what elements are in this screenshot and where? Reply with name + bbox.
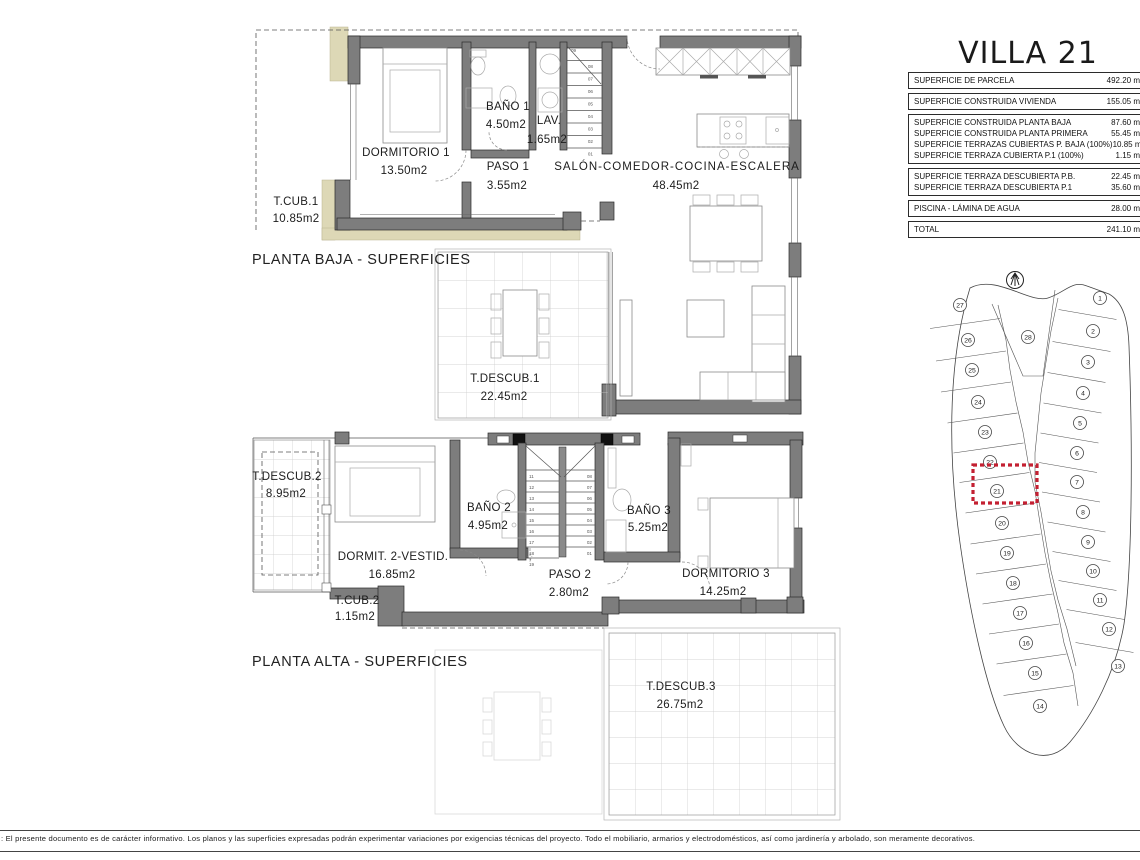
room-area: 4.95m2	[468, 520, 508, 532]
summary-value: 155.05 m	[1107, 96, 1140, 107]
plot-separator	[1048, 373, 1106, 383]
staircase: 09 0807060504030201	[567, 46, 602, 157]
stair-step-number: 16	[529, 529, 535, 534]
room-area: 1.65m2	[527, 134, 567, 146]
room-label: BAÑO 2	[467, 501, 511, 514]
room-area: 4.50m2	[486, 119, 526, 131]
disclaimer-text: : El presente documento es de carácter i…	[1, 834, 1139, 843]
room-area: 22.45m2	[481, 391, 528, 403]
summary-label: TOTAL	[914, 224, 939, 235]
plot-separator	[941, 382, 1011, 392]
plot-number: 20	[998, 520, 1006, 527]
tv-unit	[620, 300, 632, 396]
plot-separator	[983, 594, 1053, 604]
plot-separator	[1041, 433, 1099, 443]
terrace-descub-2	[254, 440, 330, 590]
summary-row: SUPERFICIE TERRAZA DESCUBIERTA P.135.60 …	[909, 182, 1140, 193]
plot-number: 9	[1086, 539, 1090, 546]
plot-number: 1	[1098, 295, 1102, 302]
summary-label: SUPERFICIE CONSTRUIDA VIVIENDA	[914, 96, 1056, 107]
summary-value: 241.10 m	[1107, 224, 1140, 235]
summary-section: SUPERFICIE CONSTRUIDA PLANTA BAJA87.60 m…	[908, 114, 1140, 164]
laundry-fixtures	[538, 54, 562, 112]
plot-separator	[989, 624, 1059, 634]
plot-separator	[1039, 463, 1097, 473]
plot-separator	[1053, 342, 1111, 352]
stair-step-number: 01	[588, 152, 594, 157]
coffee-table	[687, 300, 724, 337]
room-label: LAV.	[537, 115, 561, 127]
plot-spine	[1035, 298, 1076, 666]
summary-section: SUPERFICIE TERRAZA DESCUBIERTA P.B.22.45…	[908, 168, 1140, 196]
summary-label: SUPERFICIE CONSTRUIDA PLANTA BAJA	[914, 117, 1071, 128]
plot-separator	[976, 564, 1046, 574]
stair-step-number: 12	[529, 485, 535, 490]
room-area: 13.50m2	[381, 165, 428, 177]
stair-step-number: 13	[529, 496, 535, 501]
stair-step-number: 04	[587, 518, 593, 523]
plot-number: 23	[981, 429, 989, 436]
plan-sheet: { "title": "VILLA 21", "summary_table": …	[0, 0, 1140, 860]
stair-step-number: 17	[529, 540, 535, 545]
stair-step-number: 01	[587, 551, 593, 556]
planta-baja-plan: 09 0807060504030201	[248, 24, 812, 426]
plot-number: 17	[1016, 610, 1024, 617]
kitchen-island	[697, 114, 789, 159]
plot-separator	[1067, 610, 1125, 620]
plot-separator	[1059, 310, 1117, 320]
stair-step-number: 07	[588, 77, 594, 82]
summary-section: TOTAL241.10 m	[908, 221, 1140, 238]
summary-row: TOTAL241.10 m	[909, 224, 1140, 235]
planta-alta-caption: PLANTA ALTA - SUPERFICIES	[248, 648, 508, 674]
room-label: DORMITORIO 3	[682, 568, 770, 580]
room-label: DORMITORIO 1	[362, 147, 450, 159]
plot-number: 8	[1081, 509, 1085, 516]
stair-step-number: 08	[588, 64, 594, 69]
plot-number: 5	[1078, 420, 1082, 427]
plot-number: 11	[1096, 597, 1103, 604]
plot-number: 3	[1086, 359, 1090, 366]
plot-number: 6	[1075, 450, 1079, 457]
plot-separator	[1042, 492, 1100, 502]
room-area: 1.15m2	[335, 611, 375, 623]
room-area: 16.85m2	[369, 569, 416, 581]
room-label: DORMIT. 2-VESTID.	[338, 551, 449, 563]
plot-number: 14	[1036, 703, 1044, 710]
stair-step-number: 05	[588, 102, 594, 107]
plot-separator	[954, 443, 1024, 453]
summary-value: 1.15 m	[1116, 150, 1140, 161]
floor-caption-text: PLANTA ALTA - SUPERFICIES	[252, 654, 468, 670]
summary-label: SUPERFICIE TERRAZA DESCUBIERTA P.B.	[914, 171, 1075, 182]
stair-step-number: 15	[529, 518, 535, 523]
stair-step-number: 07	[587, 485, 593, 490]
north-compass-icon	[1007, 272, 1024, 289]
summary-label: PISCINA - LÁMINA DE AGUA	[914, 203, 1020, 214]
plot-separator	[1044, 403, 1102, 413]
plot-spine	[998, 305, 1078, 706]
plot-separator	[930, 319, 1000, 329]
plot-number: 19	[1003, 550, 1011, 557]
room-label: T.CUB.1	[274, 196, 319, 208]
summary-row: SUPERFICIE CONSTRUIDA PLANTA BAJA87.60 m	[909, 117, 1140, 128]
summary-row: SUPERFICIE DE PARCELA492.20 m	[909, 75, 1140, 86]
plot-number: 12	[1105, 626, 1113, 633]
lower-floor-ghost	[435, 650, 602, 814]
plot-number: 2	[1091, 328, 1095, 335]
summary-value: 492.20 m	[1107, 75, 1140, 86]
planta-alta-plan: 1112131415161718190807060504030201 T.DES…	[240, 428, 850, 828]
summary-label: SUPERFICIE DE PARCELA	[914, 75, 1014, 86]
summary-label: SUPERFICIE CONSTRUIDA PLANTA PRIMERA	[914, 128, 1088, 139]
bed-dormitorio-2	[335, 446, 435, 522]
summary-row: SUPERFICIE TERRAZAS CUBIERTAS P. BAJA (1…	[909, 139, 1140, 150]
stair-step-number: 14	[529, 507, 535, 512]
plot-number: 24	[974, 399, 982, 406]
summary-row: SUPERFICIE CONSTRUIDA PLANTA PRIMERA55.4…	[909, 128, 1140, 139]
summary-section: SUPERFICIE DE PARCELA492.20 m	[908, 72, 1140, 89]
summary-value: 28.00 m	[1111, 203, 1140, 214]
stair-step-number: 19	[529, 562, 535, 567]
plot-number: 21	[993, 488, 1001, 495]
room-area: 5.25m2	[628, 522, 668, 534]
plot-separator	[971, 534, 1041, 544]
summary-value: 22.45 m	[1111, 171, 1140, 182]
staircase: 1112131415161718190807060504030201	[526, 446, 595, 567]
room-area: 10.85m2	[273, 213, 320, 225]
room-area: 2.80m2	[549, 587, 589, 599]
stair-step-number: 08	[587, 474, 593, 479]
stair-step-number: 06	[587, 496, 593, 501]
floor-caption-text: PLANTA BAJA - SUPERFICIES	[252, 252, 471, 268]
room-area: 48.45m2	[653, 180, 700, 192]
room-label: BAÑO 3	[627, 504, 671, 517]
summary-row: PISCINA - LÁMINA DE AGUA28.00 m	[909, 203, 1140, 214]
plot-number: 27	[956, 302, 964, 309]
summary-label: SUPERFICIE TERRAZAS CUBIERTAS P. BAJA (1…	[914, 139, 1113, 150]
room-label: SALÓN-COMEDOR-COCINA-ESCALERA	[554, 160, 800, 173]
room-label: PASO 1	[487, 161, 530, 173]
stair-step-number: 09	[571, 48, 577, 53]
footer-rule-bottom	[0, 851, 1140, 852]
summary-row: SUPERFICIE TERRAZA CUBIERTA P.1 (100%)1.…	[909, 150, 1140, 161]
planta-baja-caption: PLANTA BAJA - SUPERFICIES	[248, 246, 508, 272]
summary-section: PISCINA - LÁMINA DE AGUA28.00 m	[908, 200, 1140, 217]
stair-step-number: 05	[587, 507, 593, 512]
dining-table	[690, 195, 762, 272]
summary-value: 10.85 m	[1113, 139, 1140, 150]
summary-row: SUPERFICIE TERRAZA DESCUBIERTA P.B.22.45…	[909, 171, 1140, 182]
plot-separator	[1053, 552, 1111, 562]
room-label: PASO 2	[549, 569, 592, 581]
room-label: T.DESCUB.2	[252, 471, 321, 483]
plot-separator	[948, 413, 1018, 423]
room-area: 14.25m2	[700, 586, 747, 598]
summary-label: SUPERFICIE TERRAZA DESCUBIERTA P.1	[914, 182, 1072, 193]
room-label: T.CUB.2	[335, 595, 380, 607]
summary-value: 87.60 m	[1111, 117, 1140, 128]
plot-separator	[1004, 686, 1074, 696]
plot-number: 16	[1022, 640, 1030, 647]
plot-number: 26	[964, 337, 972, 344]
plot-number: 4	[1081, 390, 1085, 397]
plot-number: 15	[1031, 670, 1039, 677]
bed-dormitorio-1	[383, 48, 447, 143]
bath-1-fixtures	[466, 50, 516, 108]
stair-step-number: 03	[588, 127, 594, 132]
stair-step-number: 06	[588, 89, 594, 94]
highlighted-plot-outline	[973, 465, 1037, 503]
summary-value: 35.60 m	[1111, 182, 1140, 193]
plot-number: 13	[1114, 663, 1122, 670]
plot-number: 28	[1024, 334, 1032, 341]
room-label: BAÑO 1	[486, 100, 530, 113]
villa-title: VILLA 21	[905, 36, 1140, 71]
summary-value: 55.45 m	[1111, 128, 1140, 139]
plot-separator	[1076, 643, 1134, 653]
room-label: T.DESCUB.1	[470, 373, 539, 385]
summary-row: SUPERFICIE CONSTRUIDA VIVIENDA155.05 m	[909, 96, 1140, 107]
stair-step-number: 02	[587, 540, 593, 545]
summary-label: SUPERFICIE TERRAZA CUBIERTA P.1 (100%)	[914, 150, 1084, 161]
plot-number: 10	[1089, 568, 1097, 575]
plot-separator	[1059, 581, 1117, 591]
room-area: 26.75m2	[657, 699, 704, 711]
room-label: T.DESCUB.3	[646, 681, 715, 693]
plot-separator	[960, 473, 1030, 483]
plot-separator	[1048, 522, 1106, 532]
room-area: 3.55m2	[487, 180, 527, 192]
stair-step-number: 03	[587, 529, 593, 534]
surface-summary-table: SUPERFICIE DE PARCELA492.20 mSUPERFICIE …	[908, 72, 1140, 242]
plot-number: 25	[968, 367, 976, 374]
summary-section: SUPERFICIE CONSTRUIDA VIVIENDA155.05 m	[908, 93, 1140, 110]
footer-rule-top	[0, 830, 1140, 831]
stair-step-number: 18	[529, 551, 535, 556]
kitchen-cabinets	[656, 48, 790, 79]
room-area: 8.95m2	[266, 488, 306, 500]
plot-number: 18	[1009, 580, 1017, 587]
plot-separator	[936, 351, 1006, 361]
stair-step-number: 11	[529, 474, 534, 479]
site-plan: 1234567891011121314151617181920212223242…	[930, 258, 1138, 786]
plot-separator	[997, 654, 1067, 664]
plot-number: 7	[1075, 479, 1079, 486]
stair-step-number: 02	[588, 139, 594, 144]
stair-step-number: 04	[588, 114, 594, 119]
